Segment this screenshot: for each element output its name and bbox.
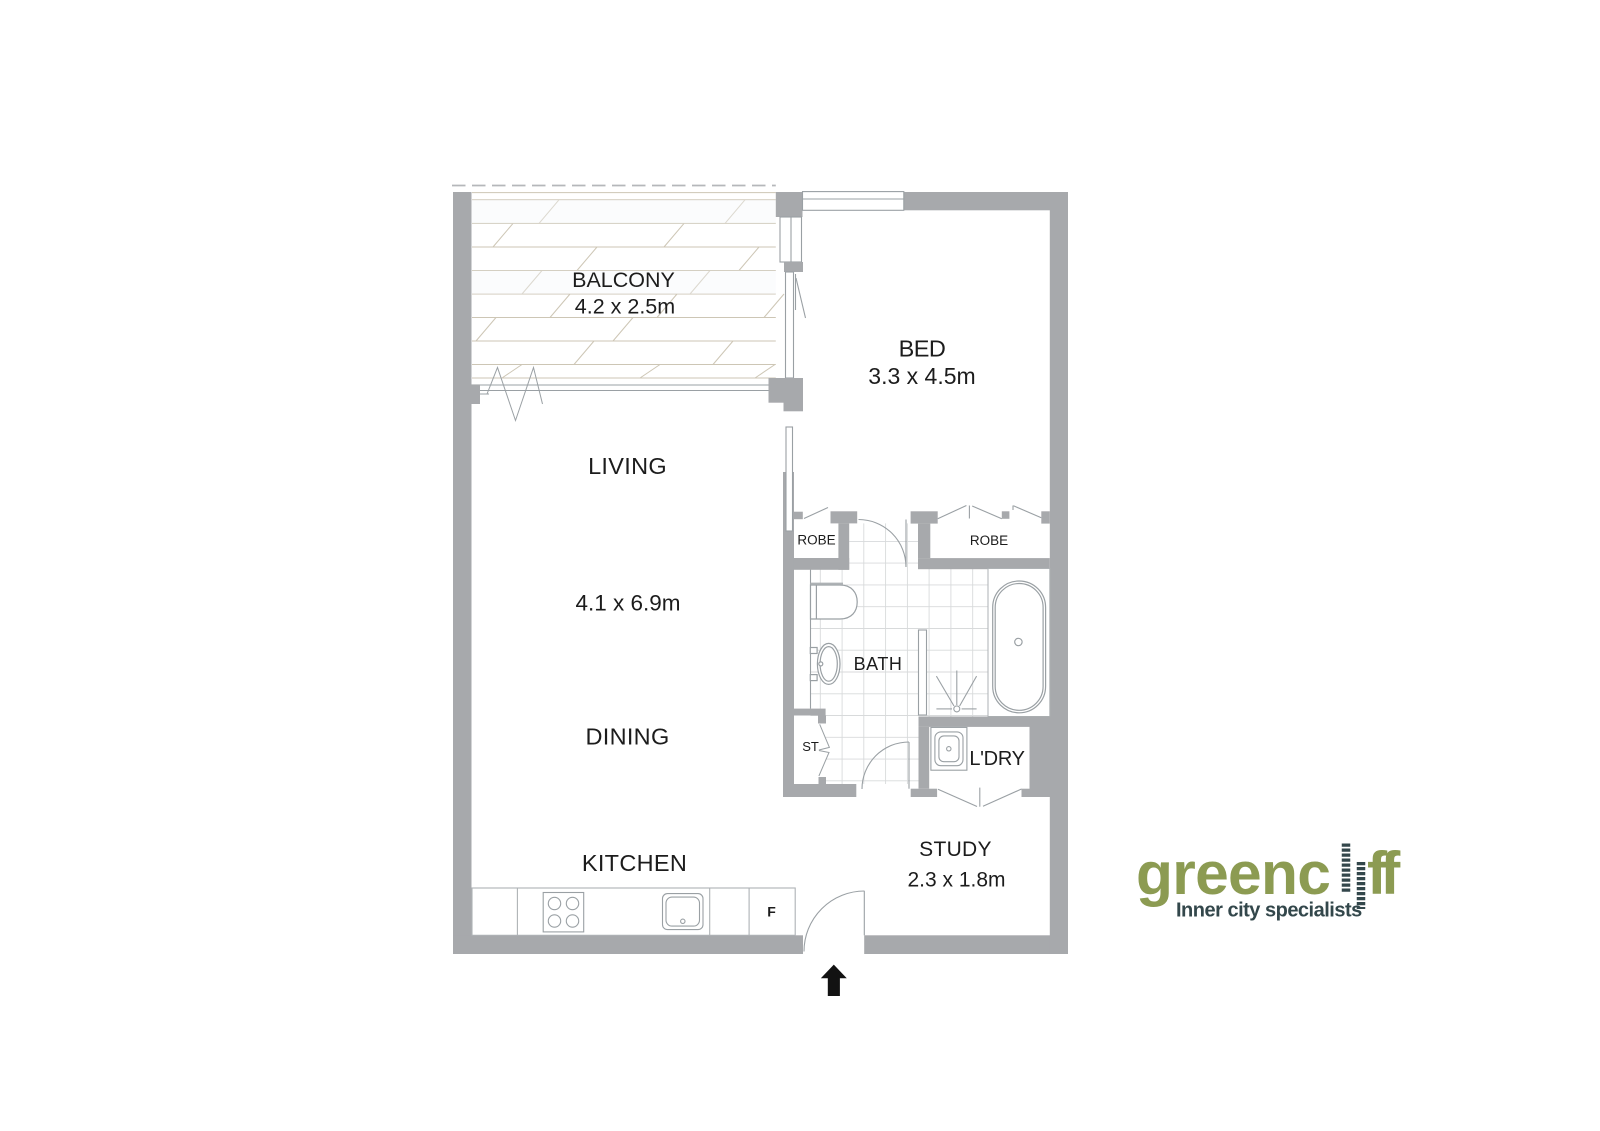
svg-text:ROBE: ROBE bbox=[970, 533, 1008, 548]
svg-text:2.3 x 1.8m: 2.3 x 1.8m bbox=[907, 869, 1005, 892]
svg-text:Inner city specialists: Inner city specialists bbox=[1176, 900, 1362, 922]
svg-text:greenc: greenc bbox=[1136, 839, 1330, 907]
svg-text:ROBE: ROBE bbox=[797, 533, 835, 548]
svg-text:STUDY: STUDY bbox=[919, 838, 992, 861]
svg-text:3.3 x 4.5m: 3.3 x 4.5m bbox=[868, 363, 975, 389]
svg-text:4.1 x 6.9m: 4.1 x 6.9m bbox=[575, 591, 680, 616]
svg-text:4.2 x 2.5m: 4.2 x 2.5m bbox=[575, 295, 675, 319]
svg-text:KITCHEN: KITCHEN bbox=[582, 850, 687, 876]
svg-text:BATH: BATH bbox=[854, 654, 903, 674]
svg-text:F: F bbox=[767, 904, 776, 920]
svg-text:ST: ST bbox=[802, 739, 819, 754]
svg-text:DINING: DINING bbox=[585, 724, 669, 750]
svg-text:BALCONY: BALCONY bbox=[572, 268, 675, 292]
svg-text:L'DRY: L'DRY bbox=[969, 748, 1024, 770]
svg-text:BED: BED bbox=[899, 336, 946, 362]
svg-text:LIVING: LIVING bbox=[588, 453, 667, 479]
